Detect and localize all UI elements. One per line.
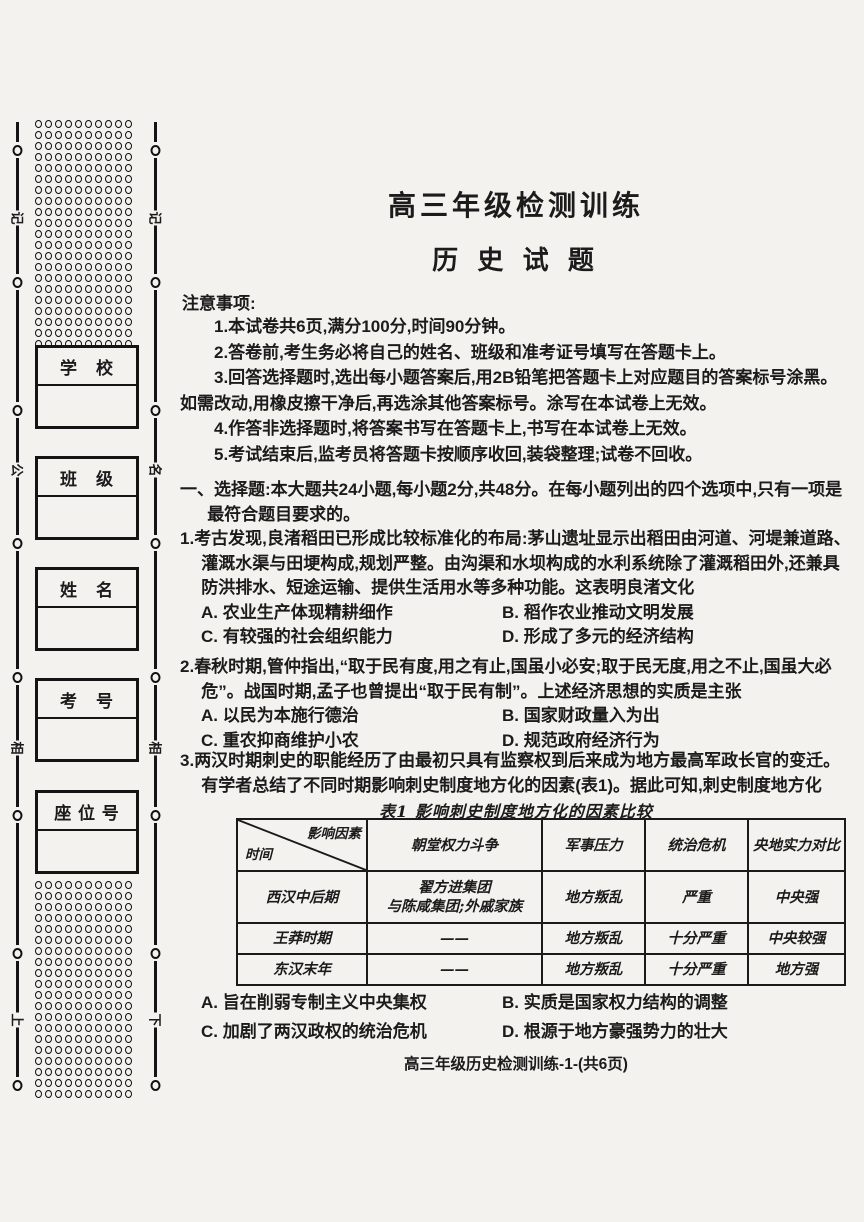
registration-dot <box>105 186 112 194</box>
registration-dot <box>45 903 52 911</box>
registration-dot <box>75 219 82 227</box>
registration-dot <box>95 1035 102 1043</box>
seal-line-left: 记 公 相 上 <box>10 122 24 1085</box>
registration-dot <box>85 1057 92 1065</box>
corner-label-time: 时间 <box>245 846 272 865</box>
registration-dot <box>45 1079 52 1087</box>
registration-dot <box>95 1002 102 1010</box>
registration-dot <box>75 1002 82 1010</box>
registration-dot <box>75 274 82 282</box>
registration-dot <box>95 241 102 249</box>
registration-dot <box>55 1046 62 1054</box>
registration-dot <box>35 958 42 966</box>
registration-dot <box>45 241 52 249</box>
registration-dot <box>35 1046 42 1054</box>
notice-item: 4.作答非选择题时,将答案书写在答题卡上,书写在本试卷上无效。 <box>180 416 852 442</box>
period-cell: 西汉中后期 <box>237 871 367 923</box>
registration-dot <box>55 329 62 337</box>
registration-dot <box>105 936 112 944</box>
registration-dot <box>115 208 122 216</box>
registration-dot <box>45 969 52 977</box>
registration-dot <box>35 1002 42 1010</box>
registration-dot <box>35 219 42 227</box>
registration-dot <box>125 197 132 205</box>
registration-dot <box>45 285 52 293</box>
registration-dot <box>85 1079 92 1087</box>
seal-mark-glyph: 公 <box>9 462 26 477</box>
notice-item: 3.回答选择题时,选出每小题答案后,用2B铅笔把答题卡上对应题目的答案标号涂黑。… <box>180 365 852 416</box>
registration-dot <box>125 925 132 933</box>
registration-dot <box>35 914 42 922</box>
registration-dot <box>35 153 42 161</box>
cell: —— <box>367 923 542 954</box>
cell: 翟方进集团与陈咸集团;外戚家族 <box>367 871 542 923</box>
registration-dot <box>105 1057 112 1065</box>
notice-item: 2.答卷前,考生务必将自己的姓名、班级和准考证号填写在答题卡上。 <box>180 340 852 366</box>
registration-dot <box>35 903 42 911</box>
registration-dot <box>115 1013 122 1021</box>
registration-dot <box>95 947 102 955</box>
registration-dot <box>85 274 92 282</box>
registration-dot <box>125 1068 132 1076</box>
registration-dot <box>65 925 72 933</box>
registration-dot <box>55 947 62 955</box>
registration-dot <box>65 1035 72 1043</box>
registration-dot <box>45 1024 52 1032</box>
registration-dot <box>65 263 72 271</box>
registration-dot <box>95 980 102 988</box>
registration-dot <box>85 980 92 988</box>
registration-dot <box>75 164 82 172</box>
registration-dot <box>75 980 82 988</box>
registration-dot <box>65 274 72 282</box>
registration-dot <box>65 1057 72 1065</box>
registration-dot <box>105 925 112 933</box>
seal-line-right: 记 名 相 下 <box>148 122 162 1085</box>
col-header: 朝堂权力斗争 <box>367 819 542 871</box>
registration-dot <box>75 252 82 260</box>
registration-dot <box>55 1090 62 1098</box>
registration-dot <box>55 914 62 922</box>
registration-circle <box>149 807 162 823</box>
registration-dot <box>95 131 102 139</box>
registration-dot <box>115 318 122 326</box>
registration-dot <box>55 208 62 216</box>
question-1-options-row: A. 农业生产体现精耕细作 B. 稻作农业推动文明发展 <box>180 601 856 626</box>
registration-dot <box>105 142 112 150</box>
table-header-row: 影响因素 时间 朝堂权力斗争 军事压力 统治危机 央地实力对比 <box>237 819 845 871</box>
registration-dot <box>65 208 72 216</box>
registration-dot <box>55 197 62 205</box>
registration-dot <box>55 892 62 900</box>
registration-dot <box>105 1002 112 1010</box>
question-number: 2. <box>180 657 194 676</box>
cell: 地方强 <box>748 954 845 985</box>
registration-dot <box>35 1013 42 1021</box>
registration-dot-grid-top <box>35 120 132 348</box>
cell: 十分严重 <box>645 923 748 954</box>
registration-dot <box>45 208 52 216</box>
registration-circle <box>11 402 24 418</box>
cell: 地方叛乱 <box>542 954 645 985</box>
registration-dot <box>85 329 92 337</box>
registration-dot <box>115 925 122 933</box>
registration-dot <box>45 1046 52 1054</box>
registration-dot <box>125 263 132 271</box>
registration-dot <box>115 263 122 271</box>
registration-dot <box>95 1057 102 1065</box>
registration-dot <box>35 252 42 260</box>
registration-dot <box>55 241 62 249</box>
registration-dot <box>45 120 52 128</box>
registration-dot <box>105 1090 112 1098</box>
registration-dot <box>115 947 122 955</box>
seatno-field-box: 座 位 号 <box>35 790 139 874</box>
question-3-stem: 3.两汉时期刺史的职能经历了由最初只具有监察权到后来成为地方最高军政长官的变迁。… <box>180 748 856 798</box>
registration-dot <box>115 936 122 944</box>
registration-dot <box>95 296 102 304</box>
registration-dot <box>85 230 92 238</box>
registration-dot <box>85 958 92 966</box>
registration-dot <box>55 120 62 128</box>
registration-dot <box>125 980 132 988</box>
registration-dot <box>95 936 102 944</box>
registration-dot <box>35 230 42 238</box>
registration-dot <box>95 186 102 194</box>
registration-dot <box>35 285 42 293</box>
registration-dot <box>105 252 112 260</box>
registration-dot <box>55 252 62 260</box>
registration-dot <box>105 197 112 205</box>
option-a: A. 农业生产体现精耕细作 <box>201 601 502 626</box>
registration-circle <box>11 535 24 551</box>
registration-dot <box>55 1024 62 1032</box>
registration-dot <box>75 1057 82 1065</box>
seal-mark-glyph: 下 <box>147 1012 164 1027</box>
registration-dot <box>55 164 62 172</box>
registration-dot <box>105 958 112 966</box>
registration-dot <box>95 197 102 205</box>
registration-dot <box>85 197 92 205</box>
registration-dot <box>75 263 82 271</box>
registration-dot <box>85 1068 92 1076</box>
registration-dot <box>95 1046 102 1054</box>
registration-dot <box>55 285 62 293</box>
registration-dot <box>105 307 112 315</box>
registration-dot <box>95 1013 102 1021</box>
registration-dot <box>125 881 132 889</box>
registration-dot <box>95 142 102 150</box>
registration-dot <box>45 991 52 999</box>
cell: 中央较强 <box>748 923 845 954</box>
registration-dot <box>85 296 92 304</box>
registration-dot <box>115 230 122 238</box>
registration-dot <box>105 219 112 227</box>
cell: 十分严重 <box>645 954 748 985</box>
registration-dot <box>35 969 42 977</box>
registration-dot <box>35 164 42 172</box>
registration-dot <box>75 1024 82 1032</box>
registration-dot <box>35 1079 42 1087</box>
notice-item: 1.本试卷共6页,满分100分,时间90分钟。 <box>180 314 852 340</box>
registration-dot <box>105 1079 112 1087</box>
question-2-block: 2.春秋时期,管仲指出,“取于民有度,用之有止,国虽小必安;取于民无度,用之不止… <box>180 655 856 753</box>
registration-dot <box>125 186 132 194</box>
registration-dot <box>85 1002 92 1010</box>
registration-dot <box>75 1068 82 1076</box>
registration-dot <box>115 274 122 282</box>
registration-dot <box>95 903 102 911</box>
registration-dot <box>35 925 42 933</box>
seatno-label: 座 位 号 <box>38 793 136 831</box>
registration-dot <box>95 153 102 161</box>
registration-dot <box>65 892 72 900</box>
registration-dot <box>75 329 82 337</box>
registration-circle <box>11 1077 24 1093</box>
school-field-box: 学 校 <box>35 345 139 429</box>
registration-dot <box>105 881 112 889</box>
registration-dot <box>125 241 132 249</box>
registration-dot <box>65 903 72 911</box>
registration-dot <box>125 307 132 315</box>
registration-dot <box>35 947 42 955</box>
registration-dot <box>55 925 62 933</box>
registration-dot <box>75 914 82 922</box>
registration-dot <box>95 1090 102 1098</box>
option-c: C. 加剧了两汉政权的统治危机 <box>201 1017 502 1046</box>
registration-dot <box>75 1035 82 1043</box>
registration-dot <box>75 197 82 205</box>
question-2-stem: 2.春秋时期,管仲指出,“取于民有度,用之有止,国虽小必安;取于民无度,用之不止… <box>180 655 856 704</box>
registration-dot <box>55 153 62 161</box>
option-b: B. 稻作农业推动文明发展 <box>502 601 694 626</box>
registration-dot <box>85 131 92 139</box>
registration-dot <box>65 197 72 205</box>
registration-dot <box>85 969 92 977</box>
registration-dot <box>55 230 62 238</box>
registration-dot <box>85 153 92 161</box>
registration-dot <box>65 131 72 139</box>
registration-dot <box>75 1079 82 1087</box>
table-row: 西汉中后期 翟方进集团与陈咸集团;外戚家族 地方叛乱 严重 中央强 <box>237 871 845 923</box>
seal-mark-glyph: 记 <box>147 210 164 225</box>
registration-dot <box>55 274 62 282</box>
registration-dot <box>115 914 122 922</box>
registration-dot <box>35 991 42 999</box>
cell: 严重 <box>645 871 748 923</box>
registration-dot <box>95 914 102 922</box>
registration-dot <box>85 186 92 194</box>
registration-dot <box>55 186 62 194</box>
registration-dot <box>35 329 42 337</box>
col-header: 央地实力对比 <box>748 819 845 871</box>
registration-dot <box>65 947 72 955</box>
registration-circle <box>149 945 162 961</box>
registration-dot <box>105 241 112 249</box>
col-header: 军事压力 <box>542 819 645 871</box>
registration-dot <box>35 936 42 944</box>
registration-dot <box>95 164 102 172</box>
registration-dot <box>85 208 92 216</box>
registration-dot <box>35 892 42 900</box>
registration-dot <box>65 307 72 315</box>
registration-dot <box>35 120 42 128</box>
period-cell: 王莽时期 <box>237 923 367 954</box>
registration-dot <box>105 208 112 216</box>
registration-dot <box>45 1002 52 1010</box>
registration-dot <box>85 1046 92 1054</box>
exam-page: 高三年级检测训练 历 史 试 题 注意事项: 1.本试卷共6页,满分100分,时… <box>180 0 852 1222</box>
registration-dot <box>55 969 62 977</box>
registration-circle <box>149 402 162 418</box>
registration-dot <box>65 1079 72 1087</box>
table-1: 影响因素 时间 朝堂权力斗争 军事压力 统治危机 央地实力对比 西汉中后期 翟方… <box>236 818 846 986</box>
option-b: B. 实质是国家权力结构的调整 <box>502 988 728 1017</box>
registration-dot <box>45 164 52 172</box>
registration-dot <box>125 219 132 227</box>
registration-dot <box>115 296 122 304</box>
registration-dot <box>105 230 112 238</box>
notice-heading: 注意事项: <box>182 289 256 314</box>
registration-dot <box>105 1024 112 1032</box>
registration-dot <box>45 936 52 944</box>
registration-dot <box>65 329 72 337</box>
registration-dot <box>105 153 112 161</box>
registration-dot <box>85 1024 92 1032</box>
registration-dot <box>115 219 122 227</box>
registration-dot <box>65 142 72 150</box>
registration-dot <box>45 186 52 194</box>
registration-dot <box>65 1024 72 1032</box>
registration-dot <box>125 208 132 216</box>
cell: —— <box>367 954 542 985</box>
cell: 地方叛乱 <box>542 871 645 923</box>
registration-dot <box>55 936 62 944</box>
registration-dot <box>95 219 102 227</box>
registration-dot <box>115 175 122 183</box>
registration-dot <box>35 274 42 282</box>
registration-dot <box>35 296 42 304</box>
registration-dot <box>65 969 72 977</box>
page-footer: 高三年级历史检测训练-1-(共6页) <box>180 1052 852 1074</box>
registration-dot <box>65 914 72 922</box>
examno-field-box: 考 号 <box>35 678 139 762</box>
registration-dot <box>115 186 122 194</box>
registration-dot <box>85 903 92 911</box>
registration-dot <box>85 881 92 889</box>
registration-dot <box>45 197 52 205</box>
name-label: 姓 名 <box>38 570 136 608</box>
registration-circle <box>11 274 24 290</box>
class-field-box: 班 级 <box>35 456 139 540</box>
period-cell: 东汉末年 <box>237 954 367 985</box>
registration-dot <box>95 991 102 999</box>
registration-dot <box>95 274 102 282</box>
registration-dot <box>55 307 62 315</box>
seal-mark-glyph: 名 <box>147 462 164 477</box>
registration-dot <box>125 936 132 944</box>
notice-list: 1.本试卷共6页,满分100分,时间90分钟。 2.答卷前,考生务必将自己的姓名… <box>180 314 852 467</box>
registration-dot <box>35 1024 42 1032</box>
registration-dot <box>95 285 102 293</box>
registration-dot <box>125 1035 132 1043</box>
registration-dot <box>55 980 62 988</box>
registration-dot <box>45 131 52 139</box>
class-label: 班 级 <box>38 459 136 497</box>
registration-dot <box>105 969 112 977</box>
registration-dot <box>125 274 132 282</box>
school-label: 学 校 <box>38 348 136 386</box>
examno-label: 考 号 <box>38 681 136 719</box>
registration-dot <box>75 1013 82 1021</box>
option-a: A. 旨在削弱专制主义中央集权 <box>201 988 502 1017</box>
registration-dot <box>105 131 112 139</box>
registration-dot <box>95 252 102 260</box>
registration-dot <box>35 1068 42 1076</box>
registration-dot <box>75 958 82 966</box>
registration-dot <box>85 307 92 315</box>
registration-dot <box>65 164 72 172</box>
registration-circle <box>11 142 24 158</box>
registration-dot <box>75 120 82 128</box>
registration-dot <box>55 1035 62 1043</box>
registration-dot <box>105 991 112 999</box>
registration-dot <box>85 285 92 293</box>
registration-dot <box>35 175 42 183</box>
registration-dot <box>105 164 112 172</box>
registration-dot <box>55 131 62 139</box>
question-number: 1. <box>180 529 194 548</box>
registration-dot <box>115 881 122 889</box>
registration-dot <box>125 892 132 900</box>
registration-dot <box>115 1068 122 1076</box>
registration-dot <box>95 881 102 889</box>
option-b: B. 国家财政量入为出 <box>502 704 660 729</box>
registration-dot <box>105 1013 112 1021</box>
exam-title: 高三年级检测训练 <box>180 184 852 224</box>
registration-dot <box>65 1002 72 1010</box>
registration-dot <box>65 120 72 128</box>
registration-circle <box>11 807 24 823</box>
registration-dot <box>105 1035 112 1043</box>
table-row: 王莽时期 —— 地方叛乱 十分严重 中央较强 <box>237 923 845 954</box>
registration-dot <box>95 175 102 183</box>
registration-dot <box>75 881 82 889</box>
registration-dot <box>105 1046 112 1054</box>
registration-dot <box>45 892 52 900</box>
registration-dot <box>115 969 122 977</box>
registration-dot <box>85 925 92 933</box>
registration-dot <box>125 1079 132 1087</box>
registration-dot <box>45 219 52 227</box>
registration-dot <box>125 1057 132 1065</box>
registration-dot <box>55 296 62 304</box>
registration-dot <box>95 208 102 216</box>
registration-dot <box>75 1090 82 1098</box>
registration-dot <box>65 296 72 304</box>
registration-dot <box>85 175 92 183</box>
registration-dot <box>35 307 42 315</box>
registration-dot <box>125 1013 132 1021</box>
registration-dot <box>55 881 62 889</box>
registration-dot <box>55 1013 62 1021</box>
registration-dot <box>65 1068 72 1076</box>
registration-dot <box>95 925 102 933</box>
registration-dot <box>45 925 52 933</box>
registration-circle <box>149 669 162 685</box>
registration-dot <box>45 881 52 889</box>
registration-dot <box>75 186 82 194</box>
